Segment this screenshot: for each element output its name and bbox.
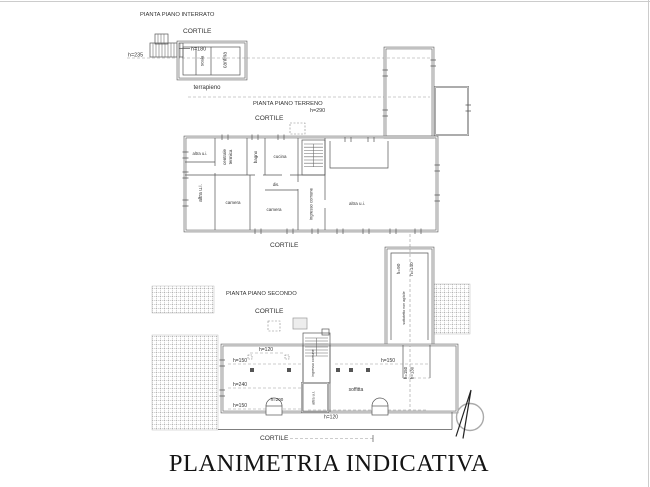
label-h235: h=235 [128, 53, 143, 59]
label-h120-top: h=120 [259, 347, 273, 353]
room-label-altra-ui-left: altra u.i. [198, 184, 204, 202]
plan-terreno-title: PIANTA PIANO TERRENO [253, 101, 323, 107]
label-h180: h=180 [191, 47, 206, 53]
drawing-title: PLANIMETRIA INDICATIVA [169, 450, 489, 477]
label-h120-bottom: h=120 [324, 415, 338, 421]
label-h130-vert: h=130 [410, 366, 415, 379]
room-label-altra-ui-top: altra u.i. [193, 151, 208, 156]
label-cortile-terreno-top: CORTILE [255, 115, 284, 122]
courtyard-skylight [293, 318, 307, 329]
label-h290: h=290 [310, 108, 325, 114]
label-h240: h=240 [233, 382, 247, 388]
basement-body [178, 42, 246, 79]
label-h150-bottom: h=150 [233, 403, 247, 409]
room-label-altra-ui-right: altra u.i. [349, 201, 365, 206]
room-label-ingresso-comune: ingresso comune [309, 187, 314, 220]
room-label-centrale-termica-2: termica [228, 149, 233, 164]
label-h150-right: h=150 [381, 358, 395, 364]
label-h150-vert: h=150 [403, 366, 408, 379]
room-label-camera-2: camera [266, 207, 282, 212]
label-h140: h=140 [409, 262, 415, 276]
room-label-ingresso-comune-secondo: ingresso comune [311, 349, 315, 376]
hatch-area-topleft [152, 286, 214, 313]
room-label-bagno: bagno [253, 150, 258, 163]
label-h90: h=90 [396, 263, 402, 274]
hatch-area-left [152, 335, 218, 430]
courtyard-chimney-dashed [290, 123, 305, 134]
label-terrapieno: terrapieno [193, 85, 221, 91]
room-label-camera-1: camera [225, 200, 241, 205]
label-cortile-secondo-bottom: CORTILE [260, 435, 289, 442]
label-cortile-secondo-top: CORTILE [255, 308, 284, 315]
room-label-cantina: cantina [223, 52, 229, 68]
room-label-altra-ui-secondo: altra u.i. [312, 391, 316, 405]
courtyard-skylight-dashed [268, 321, 280, 331]
room-label-soffitta: soffitta [349, 387, 364, 393]
floor-plan-drawing: PIANTA PIANO INTERRATO CORTILE h=235 h=1… [0, 0, 650, 487]
north-arrow-icon [456, 390, 484, 439]
label-h200: h=200 [271, 397, 284, 402]
label-cortile-interrato: CORTILE [183, 28, 212, 35]
room-label-centrale-termica-1: centrale [222, 149, 227, 166]
room-label-dis: dis. [273, 182, 280, 187]
label-cortile-terreno-bottom: CORTILE [270, 242, 299, 249]
label-h150-left: h=150 [233, 358, 247, 364]
ground-floor-windows [183, 60, 472, 234]
floor-plan-sheet: PIANTA PIANO INTERRATO CORTILE h=235 h=1… [0, 0, 650, 487]
plan-secondo: PIANTA PIANO SECONDO CORTILE h=90 h=140 … [152, 234, 484, 442]
height-zone-lines [228, 353, 430, 410]
label-ridge-note: sottotetto non agibile [402, 291, 406, 324]
plan-interrato-title: PIANTA PIANO INTERRATO [140, 12, 215, 18]
room-label-scala: scala [200, 55, 205, 66]
dormer-right [372, 398, 388, 415]
room-label-cucina: cucina [273, 154, 287, 159]
hatch-area-right [434, 284, 470, 334]
plan-secondo-title: PIANTA PIANO SECONDO [226, 291, 297, 297]
tower-wing [385, 48, 468, 137]
